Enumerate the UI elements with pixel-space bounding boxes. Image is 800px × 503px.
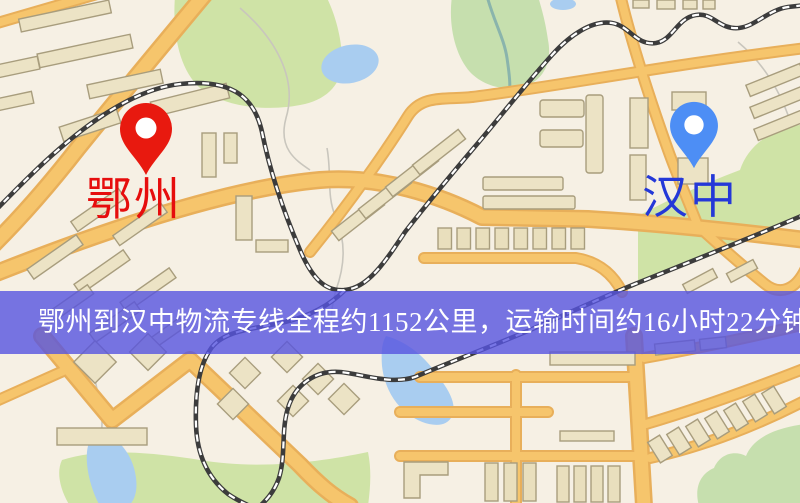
ezhou-map-pin[interactable] (116, 101, 176, 177)
hanzhong-map-pin[interactable] (666, 100, 722, 170)
route-info-banner: 鄂州到汉中物流专线全程约1152公里，运输时间约16小时22分钟. (0, 291, 800, 354)
map-image: 鄂州 汉中 鄂州到汉中物流专线全程约1152公里，运输时间约16小时22分钟. (0, 0, 800, 503)
red-pin-icon (116, 101, 176, 177)
route-info-text: 鄂州到汉中物流专线全程约1152公里，运输时间约16小时22分钟. (0, 291, 800, 354)
ezhou-city-label: 鄂州 (86, 176, 182, 222)
blue-pin-icon (666, 100, 722, 170)
hanzhong-city-label: 汉中 (642, 174, 738, 220)
map-canvas (0, 0, 800, 503)
